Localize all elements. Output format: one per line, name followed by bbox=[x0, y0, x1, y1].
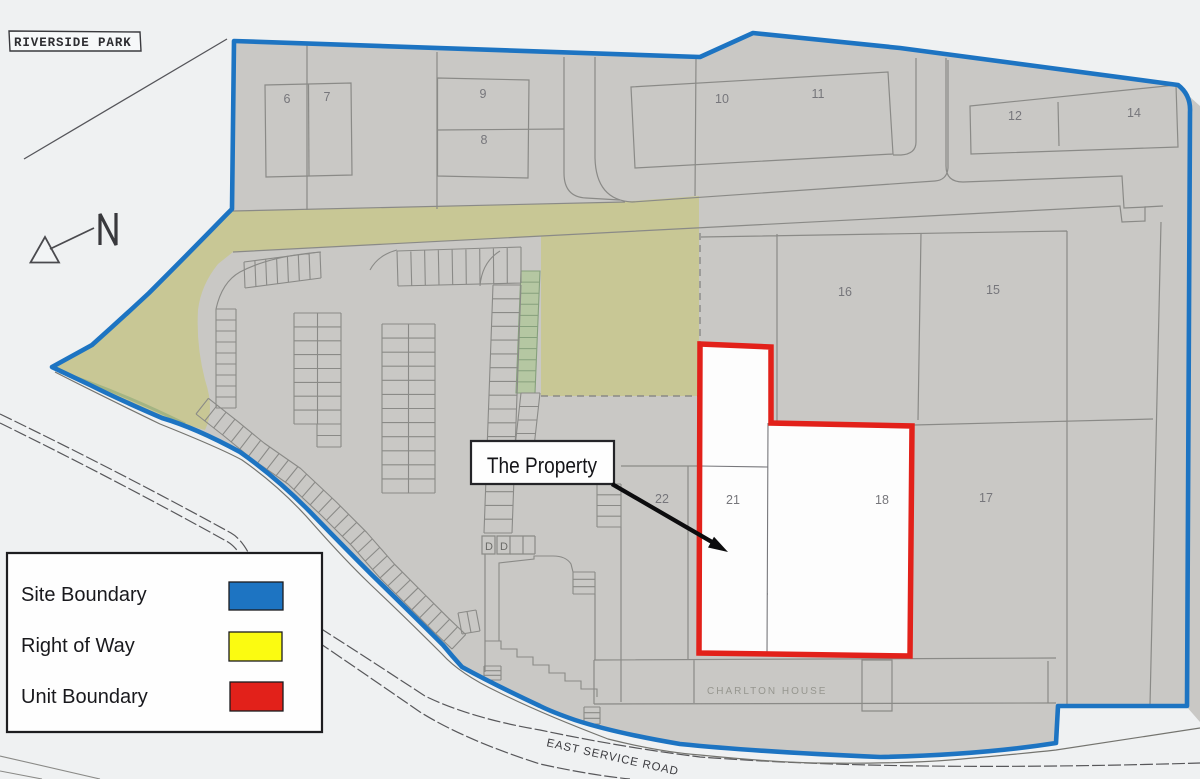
svg-text:7: 7 bbox=[324, 90, 331, 104]
svg-text:RIVERSIDE PARK: RIVERSIDE PARK bbox=[14, 36, 132, 50]
svg-text:CHARLTON HOUSE: CHARLTON HOUSE bbox=[707, 686, 827, 697]
svg-text:D: D bbox=[500, 541, 508, 553]
svg-text:17: 17 bbox=[979, 491, 993, 505]
svg-text:Site Boundary: Site Boundary bbox=[21, 584, 147, 606]
svg-text:18: 18 bbox=[875, 493, 889, 507]
svg-text:6: 6 bbox=[284, 92, 291, 106]
svg-text:8: 8 bbox=[481, 133, 488, 147]
svg-text:10: 10 bbox=[715, 92, 729, 106]
svg-text:16: 16 bbox=[838, 285, 852, 299]
svg-text:Right of Way: Right of Way bbox=[21, 635, 135, 657]
svg-text:15: 15 bbox=[986, 283, 1000, 297]
svg-text:21: 21 bbox=[726, 493, 740, 507]
svg-text:The Property: The Property bbox=[487, 454, 598, 479]
svg-text:22: 22 bbox=[655, 492, 669, 506]
svg-text:14: 14 bbox=[1127, 106, 1141, 120]
svg-text:9: 9 bbox=[480, 87, 487, 101]
svg-text:12: 12 bbox=[1008, 109, 1022, 123]
svg-text:Unit Boundary: Unit Boundary bbox=[21, 686, 148, 708]
svg-text:11: 11 bbox=[812, 87, 825, 101]
svg-text:D: D bbox=[485, 541, 493, 553]
